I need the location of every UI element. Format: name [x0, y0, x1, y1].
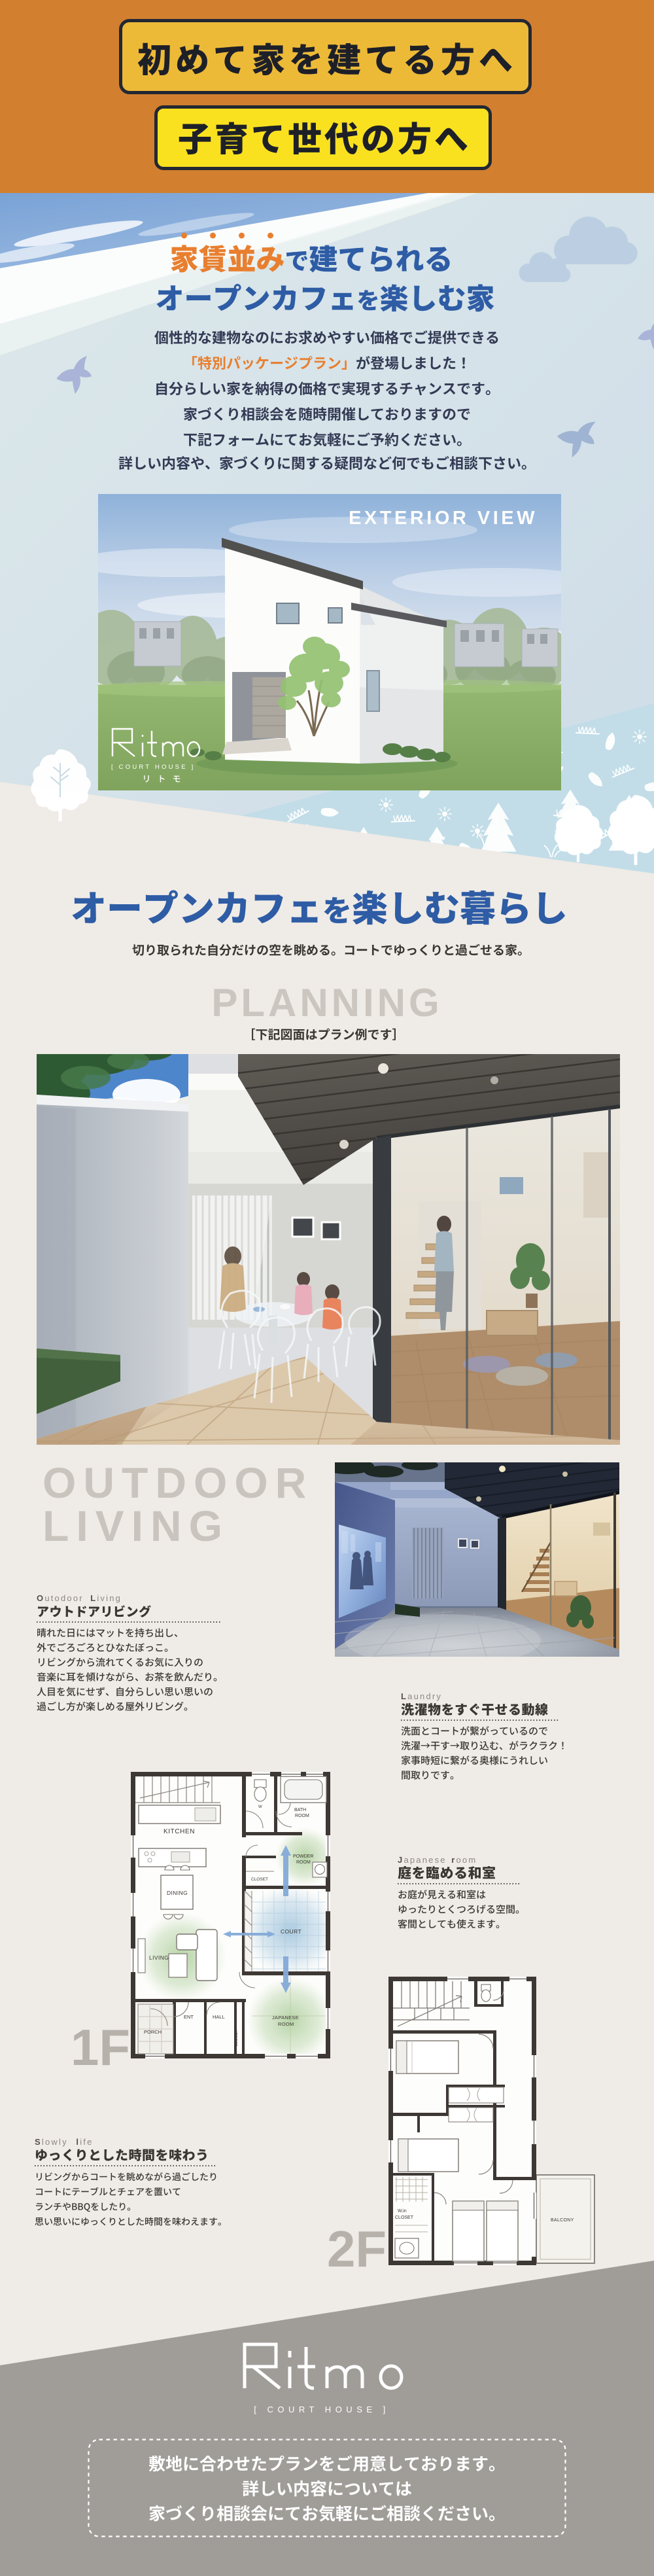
svg-text:ENT: ENT: [184, 2014, 194, 2020]
svg-text:LIVING: LIVING: [149, 1954, 169, 1961]
svg-text:ROOM: ROOM: [296, 1860, 311, 1865]
svg-text:W.in: W.in: [398, 2209, 407, 2214]
svg-text:KITCHEN: KITCHEN: [163, 1828, 195, 1835]
svg-text:POWDER: POWDER: [293, 1854, 314, 1859]
svg-text:life: life: [76, 2137, 93, 2147]
svg-text:CLOSET: CLOSET: [234, 2030, 239, 2047]
svg-text:CLOSET: CLOSET: [251, 1877, 268, 1882]
svg-text:ROOM: ROOM: [295, 1814, 309, 1818]
svg-text:JAPANESE: JAPANESE: [272, 2015, 299, 2020]
svg-text:[ COURT HOUSE ]: [ COURT HOUSE ]: [254, 2405, 390, 2414]
svg-text:BALCONY: BALCONY: [551, 2218, 574, 2223]
svg-text:BATH: BATH: [294, 1808, 306, 1812]
svg-text:Slowly: Slowly: [35, 2137, 68, 2147]
svg-text:CLOSET: CLOSET: [395, 2215, 414, 2220]
svg-text:ROOM: ROOM: [278, 2021, 294, 2027]
svg-text:DINING: DINING: [167, 1890, 188, 1896]
svg-text:PORCH: PORCH: [144, 2029, 162, 2035]
svg-text:W: W: [258, 1805, 262, 1809]
svg-text:HALL: HALL: [213, 2014, 225, 2020]
svg-text:COURT: COURT: [281, 1928, 301, 1935]
